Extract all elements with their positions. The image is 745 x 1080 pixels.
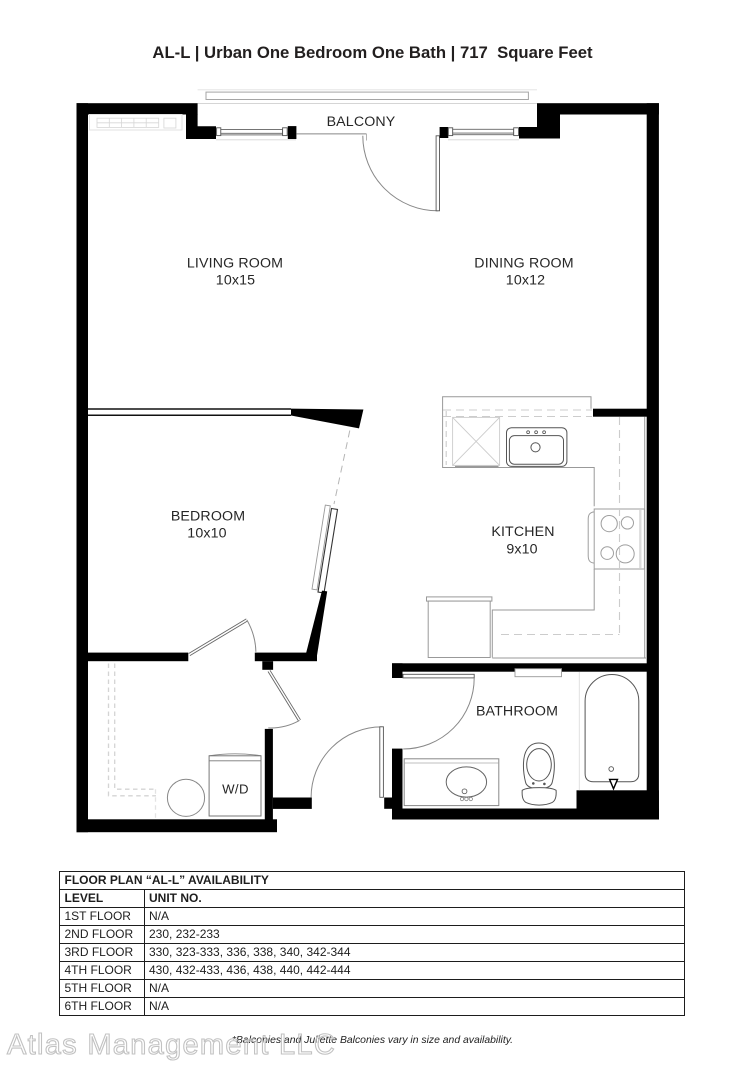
svg-text:BATHROOM: BATHROOM [476, 704, 558, 720]
svg-text:10x15: 10x15 [216, 272, 255, 288]
svg-text:KITCHEN: KITCHEN [491, 524, 554, 540]
svg-text:9x10: 9x10 [506, 542, 537, 558]
svg-text:10x12: 10x12 [506, 272, 545, 288]
svg-text:10x10: 10x10 [187, 526, 226, 542]
svg-text:LIVING ROOM: LIVING ROOM [187, 256, 283, 272]
svg-text:BEDROOM: BEDROOM [171, 508, 245, 524]
svg-text:BALCONY: BALCONY [327, 114, 396, 130]
svg-text:W/D: W/D [222, 782, 249, 797]
svg-text:DINING ROOM: DINING ROOM [474, 256, 573, 272]
